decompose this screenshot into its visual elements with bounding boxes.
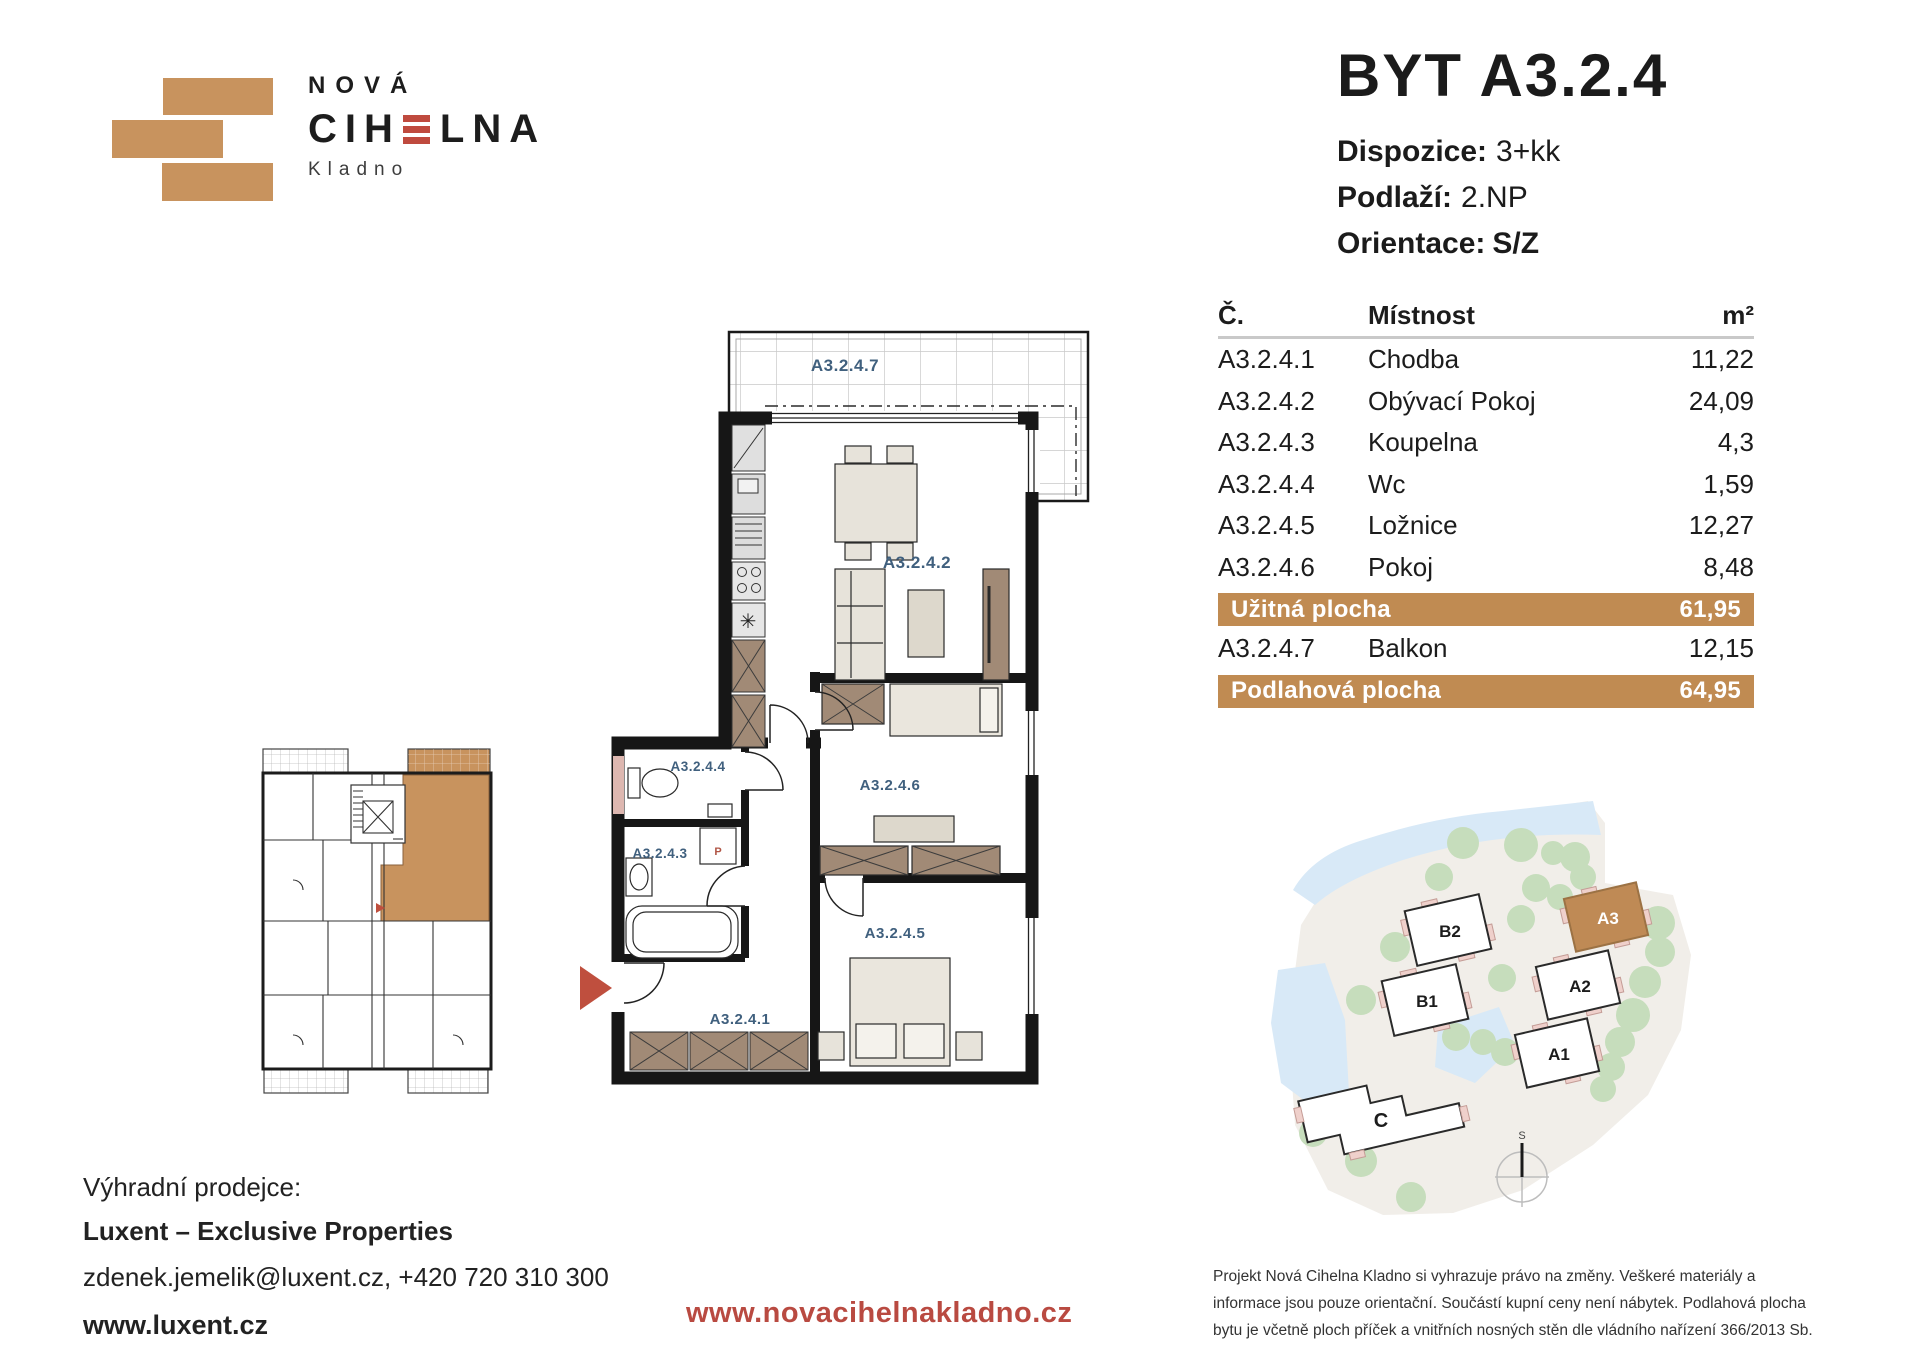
seller-label: Výhradní prodejce:	[83, 1172, 301, 1203]
plan-label-bedroom: A3.2.4.5	[865, 925, 926, 942]
wall-niche	[613, 756, 624, 814]
logo-nova: NOVÁ	[308, 72, 546, 100]
plan-label-balcony: A3.2.4.7	[811, 356, 879, 375]
table-header: Č. Místnost m²	[1218, 296, 1754, 339]
site-label-b1: B1	[1416, 992, 1438, 1011]
logo-cihelna-post: LNA	[440, 109, 546, 149]
spec-podlazi: Podlaží:2.NP	[1337, 175, 1668, 221]
site-label-a3: A3	[1597, 909, 1619, 928]
room-number: A3.2.4.5	[1218, 510, 1368, 541]
title-block: BYT A3.2.4 Dispozice:3+kk Podlaží:2.NP O…	[1337, 45, 1668, 267]
disclaimer-text: Projekt Nová Cihelna Kladno si vyhrazuje…	[1213, 1263, 1813, 1344]
logo-cihelna: CIH LNA	[308, 109, 546, 149]
room-name: Koupelna	[1368, 427, 1670, 458]
plan-label-room: A3.2.4.6	[860, 777, 921, 794]
usable-area-value: 61,95	[1679, 596, 1741, 624]
area-table: Č. Místnost m² A3.2.4.1 Chodba 11,22 A3.…	[1218, 296, 1754, 708]
apartment-floor-plan: ✳	[560, 318, 1100, 1088]
col-area: m²	[1670, 300, 1754, 331]
room-area: 12,27	[1670, 510, 1754, 541]
spec-value: 2.NP	[1461, 181, 1528, 214]
table-row-balcony: A3.2.4.7 Balkon 12,15	[1218, 628, 1754, 670]
table-row: A3.2.4.4 Wc 1,59	[1218, 464, 1754, 506]
usable-area-band: Užitná plocha 61,95	[1218, 593, 1754, 626]
building-key-plan	[253, 745, 503, 1100]
spec-value: S/Z	[1492, 227, 1539, 260]
entrance-arrow-icon	[580, 966, 612, 1010]
room-name: Balkon	[1368, 633, 1670, 664]
room-number: A3.2.4.6	[1218, 552, 1368, 583]
room-number: A3.2.4.1	[1218, 344, 1368, 375]
logo-text: NOVÁ CIH LNA Kladno	[308, 72, 546, 181]
room-name: Pokoj	[1368, 552, 1670, 583]
spec-dispozice: Dispozice:3+kk	[1337, 129, 1668, 175]
table-row: A3.2.4.3 Koupelna 4,3	[1218, 422, 1754, 464]
floor-area-label: Podlahová plocha	[1231, 677, 1441, 705]
room-number: A3.2.4.7	[1218, 633, 1368, 664]
room-name: Chodba	[1368, 344, 1670, 375]
room-area: 11,22	[1670, 344, 1754, 375]
room-name: Wc	[1368, 469, 1670, 500]
spec-value: 3+kk	[1496, 135, 1560, 168]
logo-e-bars-icon	[403, 115, 430, 144]
floor-area-value: 64,95	[1679, 677, 1741, 705]
logo-brick-icon	[162, 163, 273, 201]
plan-label-hall: A3.2.4.1	[710, 1011, 771, 1028]
spec-label: Orientace:	[1337, 227, 1485, 260]
compass-north-label: S	[1518, 1130, 1525, 1142]
floor-area-band: Podlahová plocha 64,95	[1218, 675, 1754, 708]
spec-orientace: Orientace:S/Z	[1337, 221, 1668, 267]
plan-label-living: A3.2.4.2	[883, 553, 951, 572]
room-number: A3.2.4.2	[1218, 386, 1368, 417]
site-label-a2: A2	[1569, 977, 1591, 996]
table-row: A3.2.4.1 Chodba 11,22	[1218, 339, 1754, 381]
site-plan: B2 B1 A3	[1253, 795, 1773, 1225]
room-area: 12,15	[1670, 633, 1754, 664]
site-label-c: C	[1374, 1110, 1388, 1132]
logo-brick-icon	[112, 120, 223, 158]
site-label-a1: A1	[1548, 1045, 1570, 1064]
room-area: 24,09	[1670, 386, 1754, 417]
svg-text:✳: ✳	[740, 611, 757, 633]
logo-city: Kladno	[308, 159, 546, 181]
usable-area-label: Užitná plocha	[1231, 596, 1391, 624]
logo-brick-icon	[163, 78, 273, 115]
logo: NOVÁ CIH LNA Kladno	[112, 60, 572, 210]
brochure-page: NOVÁ CIH LNA Kladno BYT A3.2.4 Dispozice…	[0, 0, 1920, 1353]
plan-label-washer: P	[714, 846, 721, 858]
logo-cihelna-pre: CIH	[308, 109, 401, 149]
apartment-outline	[618, 418, 1032, 1078]
site-label-b2: B2	[1439, 922, 1461, 941]
apartment-specs: Dispozice:3+kk Podlaží:2.NP Orientace:S/…	[1337, 129, 1668, 267]
room-number: A3.2.4.3	[1218, 427, 1368, 458]
plan-label-wc: A3.2.4.4	[670, 759, 725, 774]
col-number: Č.	[1218, 300, 1368, 331]
seller-contact: zdenek.jemelik@luxent.cz, +420 720 310 3…	[83, 1262, 609, 1293]
room-area: 8,48	[1670, 552, 1754, 583]
table-row: A3.2.4.2 Obývací Pokoj 24,09	[1218, 381, 1754, 423]
project-url-link[interactable]: www.novacihelnakladno.cz	[686, 1297, 1072, 1330]
apartment-title: BYT A3.2.4	[1337, 45, 1668, 107]
table-row: A3.2.4.5 Ložnice 12,27	[1218, 505, 1754, 547]
table-row: A3.2.4.6 Pokoj 8,48	[1218, 547, 1754, 589]
room-area: 1,59	[1670, 469, 1754, 500]
seller-url-link[interactable]: www.luxent.cz	[83, 1310, 268, 1341]
seller-name: Luxent – Exclusive Properties	[83, 1216, 453, 1247]
room-name: Obývací Pokoj	[1368, 386, 1670, 417]
hall-wardrobe	[630, 1032, 808, 1070]
col-room: Místnost	[1368, 300, 1670, 331]
plan-label-bath: A3.2.4.3	[632, 846, 687, 861]
spec-label: Podlaží:	[1337, 181, 1452, 214]
room-name: Ložnice	[1368, 510, 1670, 541]
spec-label: Dispozice:	[1337, 135, 1487, 168]
room-area: 4,3	[1670, 427, 1754, 458]
room-number: A3.2.4.4	[1218, 469, 1368, 500]
